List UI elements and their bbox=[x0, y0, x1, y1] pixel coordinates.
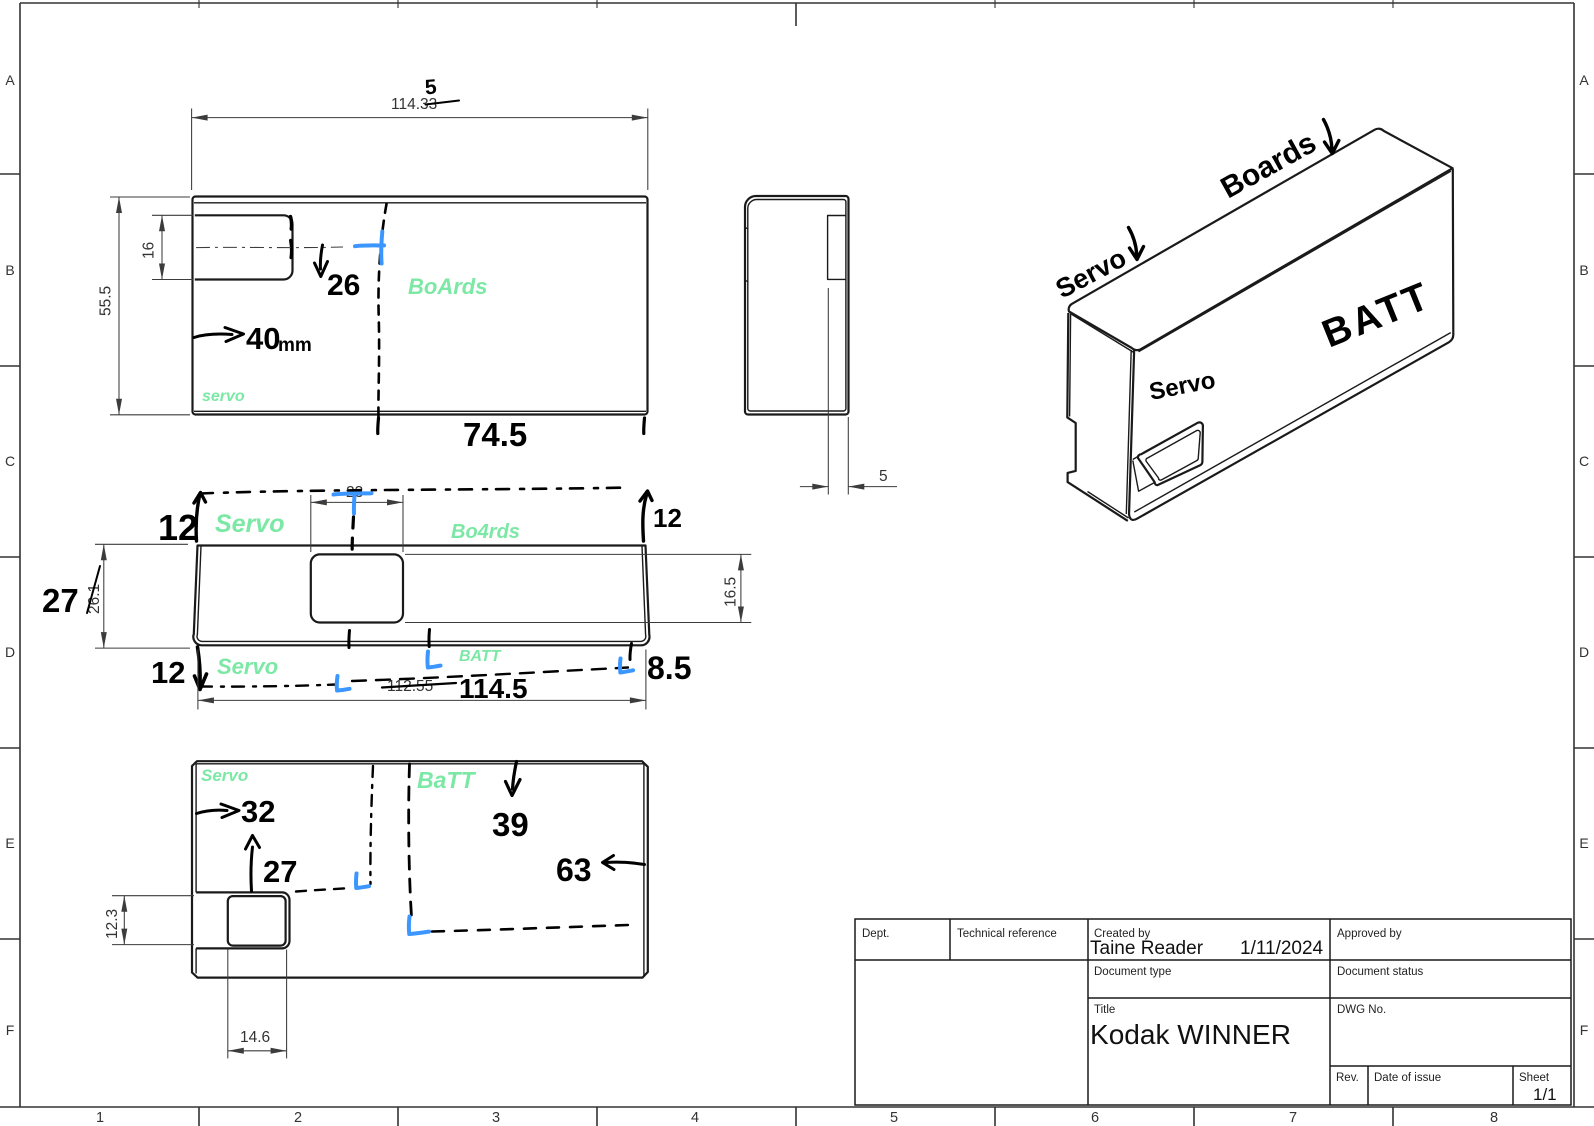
svg-text:Bo4rds: Bo4rds bbox=[451, 521, 520, 543]
svg-text:Sheet: Sheet bbox=[1519, 1072, 1550, 1084]
svg-text:1: 1 bbox=[96, 1110, 104, 1126]
svg-text:A: A bbox=[1579, 72, 1589, 88]
svg-text:39: 39 bbox=[492, 806, 529, 843]
svg-text:BATT: BATT bbox=[459, 648, 502, 665]
svg-text:Kodak WINNER: Kodak WINNER bbox=[1090, 1019, 1291, 1050]
svg-text:7: 7 bbox=[1289, 1110, 1297, 1126]
svg-text:B: B bbox=[5, 262, 14, 278]
svg-text:2: 2 bbox=[294, 1110, 302, 1126]
svg-text:12.3: 12.3 bbox=[104, 909, 121, 939]
svg-text:Servo: Servo bbox=[217, 654, 278, 679]
svg-text:40: 40 bbox=[246, 321, 280, 356]
svg-text:E: E bbox=[1579, 835, 1588, 851]
svg-text:BoArds: BoArds bbox=[408, 274, 487, 299]
svg-text:Approved by: Approved by bbox=[1337, 928, 1402, 940]
svg-text:5: 5 bbox=[879, 468, 888, 485]
svg-text:5: 5 bbox=[424, 76, 438, 100]
svg-text:6: 6 bbox=[1091, 1110, 1099, 1126]
svg-text:Servo: Servo bbox=[215, 510, 284, 538]
svg-text:servo: servo bbox=[202, 388, 245, 405]
svg-text:Technical reference: Technical reference bbox=[957, 928, 1057, 940]
svg-text:74.5: 74.5 bbox=[463, 416, 527, 453]
svg-text:114.5: 114.5 bbox=[459, 673, 528, 704]
svg-text:Dept.: Dept. bbox=[862, 928, 890, 940]
svg-text:Rev.: Rev. bbox=[1336, 1072, 1359, 1084]
svg-text:4: 4 bbox=[691, 1110, 699, 1126]
svg-text:27: 27 bbox=[263, 854, 297, 889]
svg-text:8.5: 8.5 bbox=[647, 650, 691, 686]
svg-text:mm: mm bbox=[278, 335, 312, 356]
svg-text:5: 5 bbox=[890, 1110, 898, 1126]
svg-text:12: 12 bbox=[158, 507, 198, 548]
svg-text:BaTT: BaTT bbox=[417, 767, 476, 793]
svg-text:Date of issue: Date of issue bbox=[1374, 1072, 1441, 1084]
svg-text:Servo: Servo bbox=[201, 766, 248, 785]
svg-text:A: A bbox=[5, 72, 15, 88]
svg-text:E: E bbox=[5, 835, 14, 851]
svg-text:8: 8 bbox=[1490, 1110, 1498, 1126]
svg-text:27: 27 bbox=[42, 582, 79, 619]
svg-text:32: 32 bbox=[241, 794, 275, 829]
svg-text:C: C bbox=[1579, 453, 1589, 469]
svg-text:Document status: Document status bbox=[1337, 966, 1424, 978]
svg-text:55.5: 55.5 bbox=[98, 286, 115, 316]
svg-text:Document type: Document type bbox=[1094, 966, 1171, 978]
svg-text:B: B bbox=[1579, 262, 1588, 278]
svg-text:C: C bbox=[5, 453, 15, 469]
svg-text:Taine Reader: Taine Reader bbox=[1090, 938, 1204, 959]
svg-text:1/1: 1/1 bbox=[1533, 1085, 1557, 1104]
svg-text:63: 63 bbox=[556, 852, 592, 888]
svg-text:F: F bbox=[1580, 1022, 1589, 1038]
svg-text:F: F bbox=[6, 1022, 15, 1038]
svg-text:DWG No.: DWG No. bbox=[1337, 1004, 1386, 1016]
svg-text:12: 12 bbox=[653, 503, 682, 533]
svg-text:D: D bbox=[5, 644, 15, 660]
svg-text:16: 16 bbox=[141, 242, 158, 259]
svg-text:14.6: 14.6 bbox=[240, 1029, 270, 1046]
svg-text:16.5: 16.5 bbox=[723, 577, 740, 607]
svg-text:1/11/2024: 1/11/2024 bbox=[1240, 938, 1324, 959]
svg-text:26: 26 bbox=[327, 269, 360, 302]
svg-text:3: 3 bbox=[492, 1110, 500, 1126]
svg-text:Title: Title bbox=[1094, 1004, 1115, 1016]
svg-text:12: 12 bbox=[151, 655, 185, 690]
svg-text:D: D bbox=[1579, 644, 1589, 660]
